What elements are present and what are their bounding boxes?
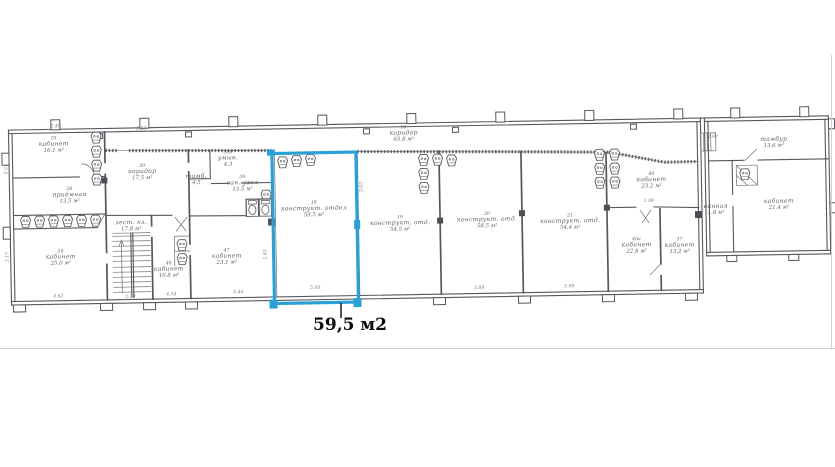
dimension-label: 2.53	[135, 126, 146, 132]
dimension-label: 5.88	[474, 285, 484, 291]
highlighted-room[interactable]	[267, 148, 362, 309]
room-label: лест. кл.17.8 м²	[115, 219, 147, 233]
dimension-label: 4.54	[165, 291, 176, 297]
room-label: 47кабинет23.1 м²	[212, 247, 242, 266]
room-label: 25кабинет16.1 м²	[39, 135, 69, 154]
room-label: 20конструкт. отд.58.5 м²	[457, 210, 517, 229]
dimension-label: 2.38	[124, 294, 135, 300]
dimension-label: 4.62	[52, 293, 63, 299]
room-label: 24кабинет25.0 м²	[46, 248, 76, 267]
room-label: 37кабинет13.2 м²	[664, 236, 694, 255]
dimension-label: 2.21	[3, 164, 9, 175]
dimension-label: 5.44	[233, 289, 243, 295]
room-label: ванная1.8 м²	[704, 203, 729, 217]
room-label: 21конструкт. отд.54.4 м²	[540, 212, 600, 231]
scanned-plan: 25кабинет16.1 м²26приёмная13.5 м²24кабин…	[1, 106, 835, 313]
highlighted-room-outline[interactable]	[272, 152, 359, 303]
room-label: 30коридор17.5 м²	[128, 163, 157, 182]
dimension-labels: 2.482.532.213.174.622.384.545.445.605.93…	[2, 112, 720, 302]
floor-plan-page: 25кабинет16.1 м²26приёмная13.5 м²24кабин…	[0, 0, 835, 467]
room-label: 40кабинет23.2 м²	[636, 171, 666, 190]
dimension-label: 5.90	[564, 283, 574, 289]
area-annotation: 59,5 м2	[313, 315, 387, 335]
dimension-label: 3.03	[358, 182, 364, 192]
room-label: 19конструкт. отд.54.5 м²	[370, 214, 430, 233]
dimension-label: 5.93	[263, 249, 269, 259]
dimension-label: 5.60	[310, 285, 320, 291]
dimension-label: 1.08	[644, 198, 654, 204]
room-label: 39сан. узел13.5 м²	[226, 174, 258, 193]
room-label: 46акабинет22.8 м²	[621, 236, 651, 255]
dimension-label: 2.48	[49, 123, 60, 129]
room-label: 26приёмная13.5 м²	[52, 186, 86, 205]
room-label: кабинет21.4 м²	[764, 197, 794, 211]
floor-plan-svg: 25кабинет16.1 м²26приёмная13.5 м²24кабин…	[0, 0, 835, 467]
room-label: 18конструкт. отдел59.5 м²	[281, 199, 347, 219]
dimension-label: 2.00	[707, 134, 718, 140]
room-label: тамбур13.6 м²	[760, 136, 787, 150]
staircase	[112, 233, 151, 298]
dimension-label: 3.17	[5, 252, 11, 262]
